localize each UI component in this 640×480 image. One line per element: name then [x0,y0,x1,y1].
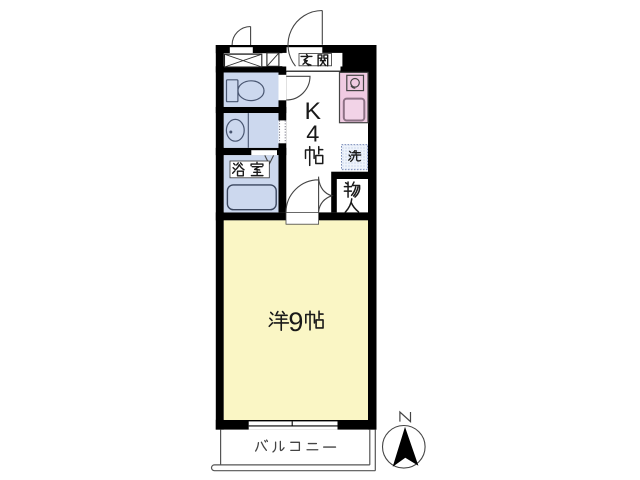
svg-text:9: 9 [288,307,303,337]
svg-text:4: 4 [306,121,319,147]
